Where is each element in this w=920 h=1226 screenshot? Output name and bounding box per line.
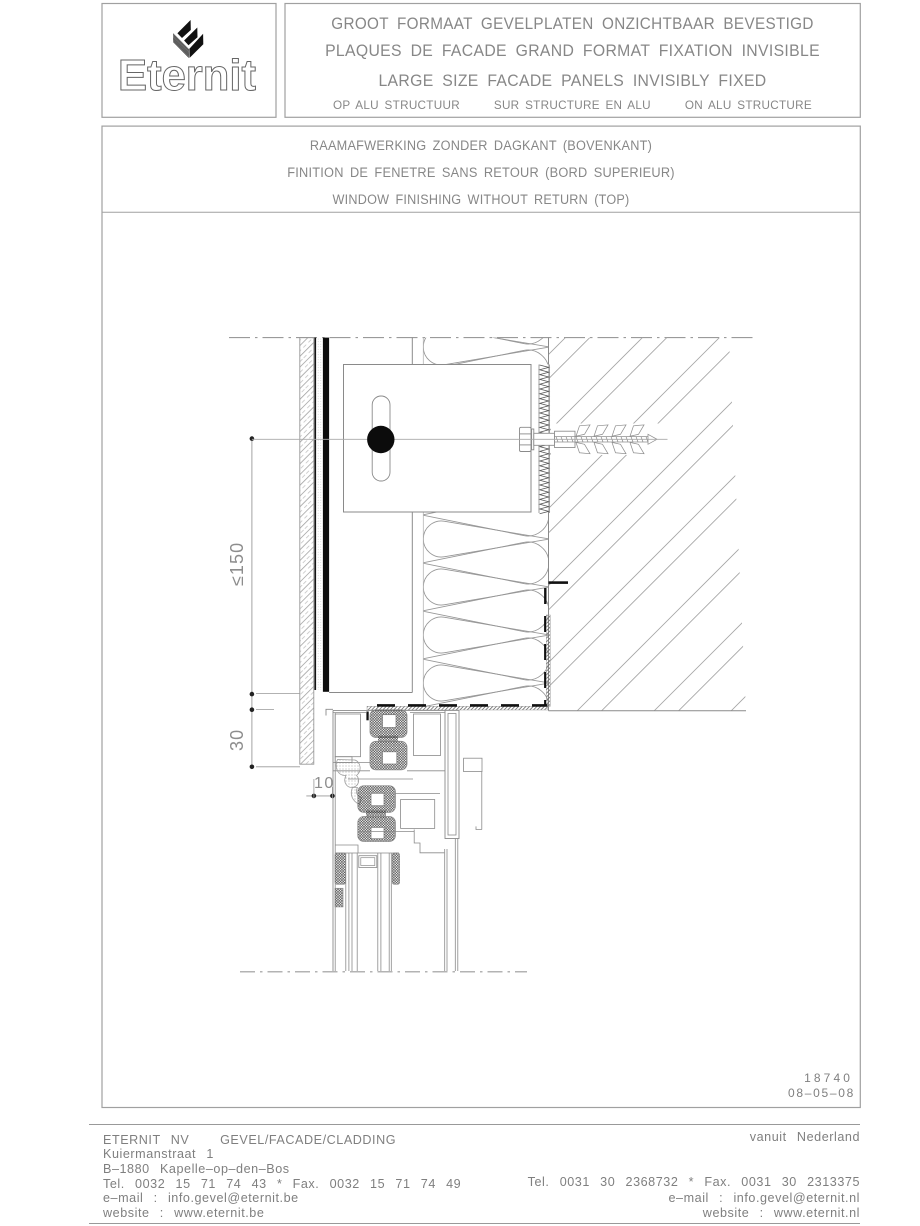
svg-text:Eternit: Eternit — [118, 52, 256, 100]
